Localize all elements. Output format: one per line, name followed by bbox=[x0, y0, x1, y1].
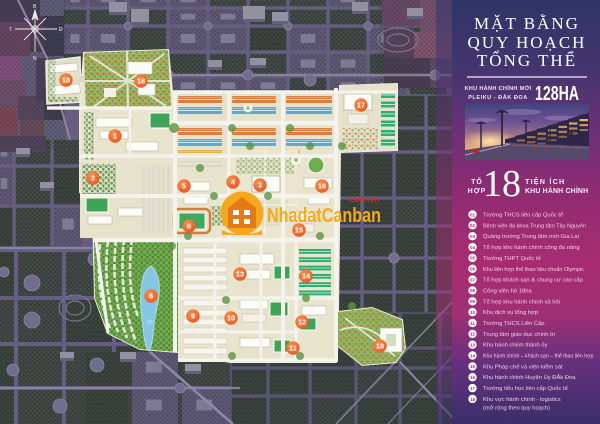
svg-text:11: 11 bbox=[470, 321, 475, 326]
svg-text:16: 16 bbox=[318, 182, 326, 191]
svg-text:14: 14 bbox=[302, 272, 311, 281]
svg-text:3: 3 bbox=[258, 181, 262, 190]
svg-text:Khu hành chính Huyện Ủy ĐẮk Đo: Khu hành chính Huyện Ủy ĐẮk Đoa bbox=[483, 373, 576, 381]
svg-text:05: 05 bbox=[470, 256, 476, 261]
svg-text:Tổ hợp khu hành chính xã hội: Tổ hợp khu hành chính xã hội bbox=[483, 298, 560, 305]
svg-text:8: 8 bbox=[149, 292, 153, 301]
svg-text:(mở rộng theo quy hoạch): (mở rộng theo quy hoạch) bbox=[483, 404, 550, 411]
svg-text:Trường THCS liên cấp Quốc tế: Trường THCS liên cấp Quốc tế bbox=[483, 213, 564, 219]
svg-text:17: 17 bbox=[470, 386, 476, 391]
svg-text:10: 10 bbox=[227, 314, 235, 323]
svg-text:Trường THCS Liên Cấp: Trường THCS Liên Cấp bbox=[483, 321, 545, 327]
svg-text:QUY HOẠCH: QUY HOẠCH bbox=[468, 33, 587, 52]
svg-text:11: 11 bbox=[289, 344, 297, 353]
svg-text:PLEIKU - ĐẮK ĐOA: PLEIKU - ĐẮK ĐOA bbox=[468, 93, 528, 101]
svg-text:Trường tiểu học liên cấp Quốc: Trường tiểu học liên cấp Quốc tế bbox=[483, 385, 569, 392]
svg-text:NhadatCanban: NhadatCanban bbox=[267, 205, 381, 227]
svg-text:Khu hành chính – khách sạn – t: Khu hành chính – khách sạn – thể thao li… bbox=[483, 353, 594, 360]
svg-text:Công viên hồ 18ha: Công viên hồ 18ha bbox=[483, 288, 532, 294]
svg-text:9: 9 bbox=[191, 312, 195, 321]
svg-text:T: T bbox=[9, 27, 12, 33]
svg-text:01: 01 bbox=[470, 212, 476, 217]
svg-text:02: 02 bbox=[470, 223, 476, 228]
svg-text:13: 13 bbox=[236, 270, 244, 279]
svg-text:12: 12 bbox=[470, 332, 476, 337]
svg-text:KHU HÀNH CHÍNH MỚI: KHU HÀNH CHÍNH MỚI bbox=[464, 84, 531, 92]
svg-text:TỔNG THỂ: TỔNG THỂ bbox=[477, 50, 577, 70]
svg-text:Khu dịch vụ tổng hợp: Khu dịch vụ tổng hợp bbox=[483, 309, 538, 316]
svg-text:13: 13 bbox=[470, 343, 476, 348]
svg-text:04: 04 bbox=[470, 245, 476, 250]
svg-text:Khu vực hành chính - logistics: Khu vực hành chính - logistics bbox=[483, 397, 561, 403]
svg-text:Quảng trường Trung tâm mới Gia: Quảng trường Trung tâm mới Gia Lai bbox=[483, 234, 579, 240]
svg-text:18: 18 bbox=[483, 163, 521, 205]
svg-text:2: 2 bbox=[91, 174, 95, 183]
svg-text:N: N bbox=[33, 56, 37, 62]
svg-text:18: 18 bbox=[137, 77, 145, 86]
svg-text:12: 12 bbox=[298, 318, 306, 327]
svg-text:Khu Pháp chế và viện kiểm sát: Khu Pháp chế và viện kiểm sát bbox=[483, 363, 563, 370]
svg-text:09: 09 bbox=[470, 299, 476, 304]
svg-text:Trường THPT Quốc tế: Trường THPT Quốc tế bbox=[483, 256, 542, 262]
svg-text:KHU HÀNH CHÍNH: KHU HÀNH CHÍNH bbox=[525, 186, 588, 195]
svg-text:14: 14 bbox=[470, 353, 476, 358]
svg-text:6: 6 bbox=[187, 222, 191, 231]
svg-text:10: 10 bbox=[470, 310, 476, 315]
svg-text:TỔ: TỔ bbox=[471, 177, 483, 186]
svg-text:07: 07 bbox=[470, 277, 476, 282]
svg-text:03: 03 bbox=[470, 234, 476, 239]
svg-text:Trung tâm giáo dục chính trị: Trung tâm giáo dục chính trị bbox=[483, 332, 555, 338]
svg-text:Tổ hợp khu hành chính công đa: Tổ hợp khu hành chính công đa năng bbox=[483, 244, 580, 251]
svg-text:18: 18 bbox=[376, 342, 384, 351]
svg-text:08: 08 bbox=[470, 288, 476, 293]
svg-text:Khu liên hợp thể thao tiêu chu: Khu liên hợp thể thao tiêu chuẩn Olympic bbox=[483, 266, 584, 273]
svg-text:18: 18 bbox=[62, 76, 70, 85]
svg-text:128HA: 128HA bbox=[535, 83, 579, 105]
svg-text:06: 06 bbox=[470, 267, 476, 272]
svg-text:.com.vn: .com.vn bbox=[348, 194, 379, 204]
svg-text:MẶT BẰNG: MẶT BẰNG bbox=[474, 14, 580, 33]
svg-text:16: 16 bbox=[470, 375, 476, 380]
svg-text:17: 17 bbox=[357, 101, 365, 110]
svg-text:1: 1 bbox=[113, 132, 117, 141]
svg-text:Khu hành chính thành ủy: Khu hành chính thành ủy bbox=[483, 342, 548, 349]
svg-text:Bệnh viện đa khoa Trung tâm Tâ: Bệnh viện đa khoa Trung tâm Tây Nguyên bbox=[483, 223, 586, 229]
svg-text:15: 15 bbox=[470, 364, 476, 369]
svg-text:Đ: Đ bbox=[59, 27, 63, 33]
svg-text:18: 18 bbox=[470, 397, 476, 402]
svg-text:TIỆN ÍCH: TIỆN ÍCH bbox=[525, 177, 565, 186]
svg-text:Tổ hợp khách sạn & chung cư ca: Tổ hợp khách sạn & chung cư cao cấp bbox=[483, 277, 583, 284]
svg-text:5: 5 bbox=[182, 182, 186, 191]
